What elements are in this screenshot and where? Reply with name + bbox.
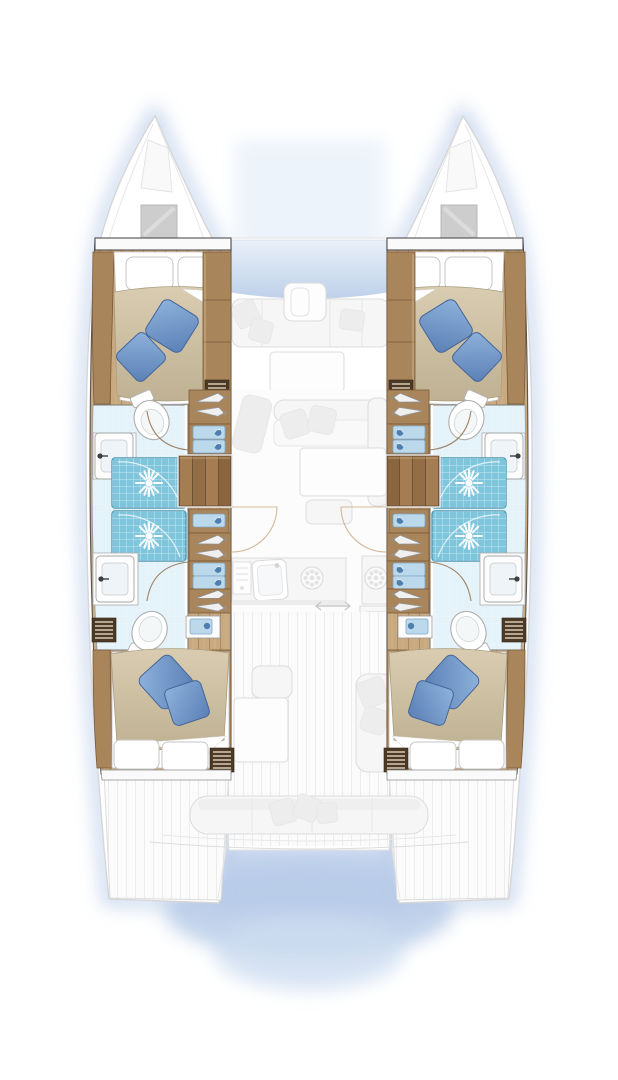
pillow	[126, 257, 173, 290]
salon-table	[300, 448, 386, 496]
burner-icon	[301, 567, 323, 589]
hanging-locker	[189, 390, 231, 424]
cockpit-table	[234, 698, 288, 762]
blue-drawer	[193, 426, 225, 439]
louvre-vent-icon	[92, 618, 116, 642]
catamaran-floor-plan	[0, 0, 618, 1080]
cushion	[339, 308, 366, 331]
blue-drawer	[193, 576, 225, 589]
pillow	[162, 742, 208, 771]
cushion	[316, 802, 338, 824]
burner-icon	[365, 567, 387, 589]
washbasin-icon	[96, 556, 134, 602]
forward-cockpit-table	[270, 352, 344, 392]
galley-counter-edge	[232, 600, 346, 605]
blue-drawer	[193, 563, 225, 576]
cockpit-bench	[252, 666, 292, 698]
sink-icon	[252, 559, 289, 601]
blue-drawer	[193, 514, 225, 527]
blue-drawer	[193, 440, 225, 453]
pillow	[114, 740, 159, 769]
cushion	[307, 405, 338, 436]
louvre-vent-icon	[210, 748, 234, 772]
aft-bulkhead	[101, 770, 231, 780]
berth-rail	[93, 650, 112, 768]
stairs-icon	[178, 455, 232, 507]
floor-plan-svg	[0, 0, 618, 1080]
salon-bench	[306, 500, 352, 524]
shower-stall	[112, 458, 186, 508]
forward-bulkhead	[95, 238, 231, 250]
side-shelf	[92, 252, 114, 404]
